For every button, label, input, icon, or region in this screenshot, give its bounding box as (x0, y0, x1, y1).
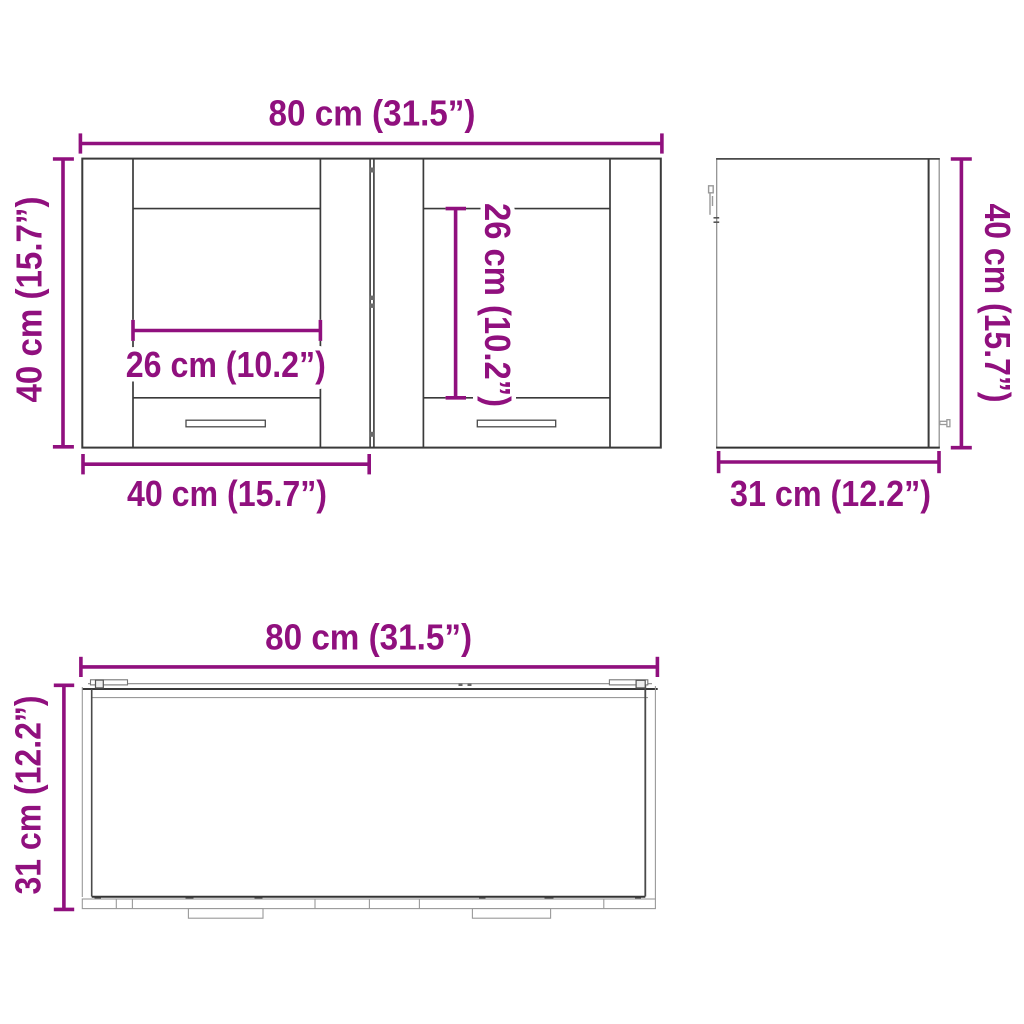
svg-text:40 cm (15.7”): 40 cm (15.7”) (977, 204, 1018, 403)
svg-text:26 cm (10.2”): 26 cm (10.2”) (477, 203, 518, 407)
svg-text:40 cm (15.7”): 40 cm (15.7”) (8, 197, 49, 403)
svg-text:31 cm (12.2”): 31 cm (12.2”) (730, 473, 931, 514)
svg-text:26 cm (10.2”): 26 cm (10.2”) (126, 344, 326, 385)
svg-text:31 cm (12.2”): 31 cm (12.2”) (7, 696, 48, 895)
svg-text:40 cm (15.7”): 40 cm (15.7”) (127, 473, 327, 514)
svg-text:80 cm (31.5”): 80 cm (31.5”) (265, 617, 472, 658)
svg-text:80 cm (31.5”): 80 cm (31.5”) (269, 92, 476, 133)
